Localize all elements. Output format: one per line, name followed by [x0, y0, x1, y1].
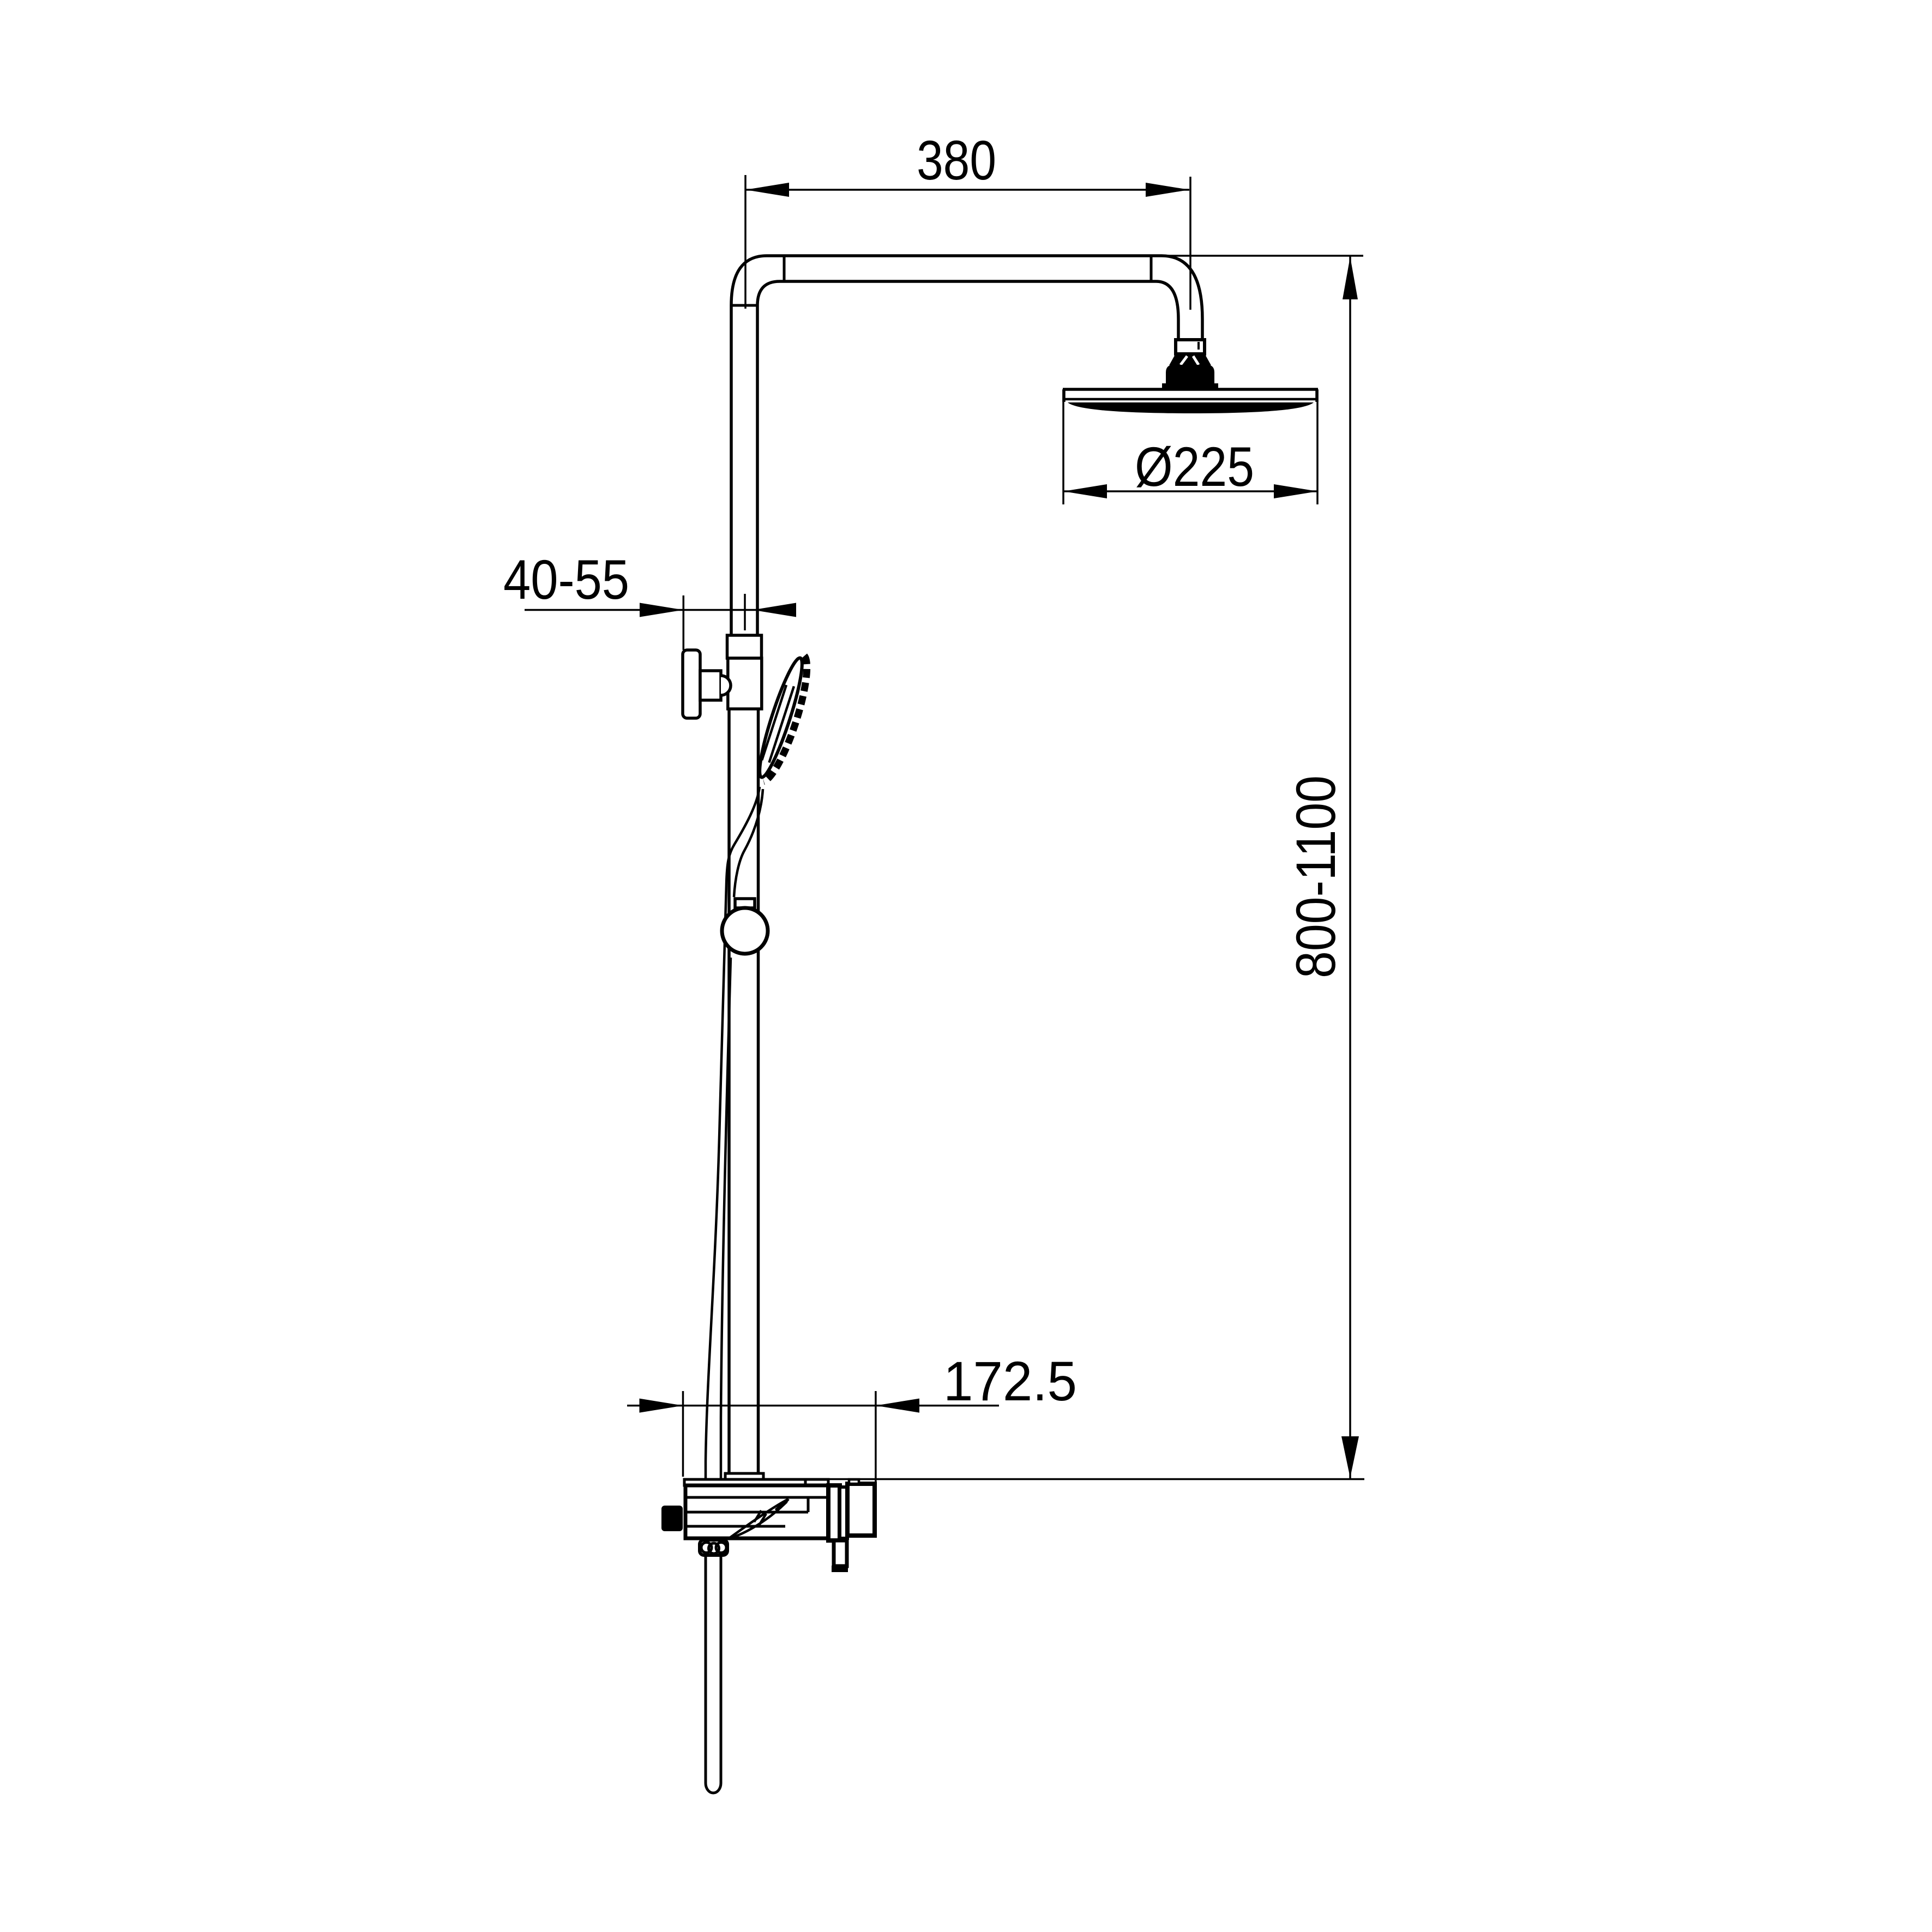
svg-text:800-1100: 800-1100 [1285, 775, 1347, 978]
svg-text:40-55: 40-55 [503, 549, 629, 611]
svg-text:Ø225: Ø225 [1135, 436, 1254, 498]
svg-text:380: 380 [917, 129, 996, 191]
svg-text:172.5: 172.5 [943, 1350, 1077, 1412]
